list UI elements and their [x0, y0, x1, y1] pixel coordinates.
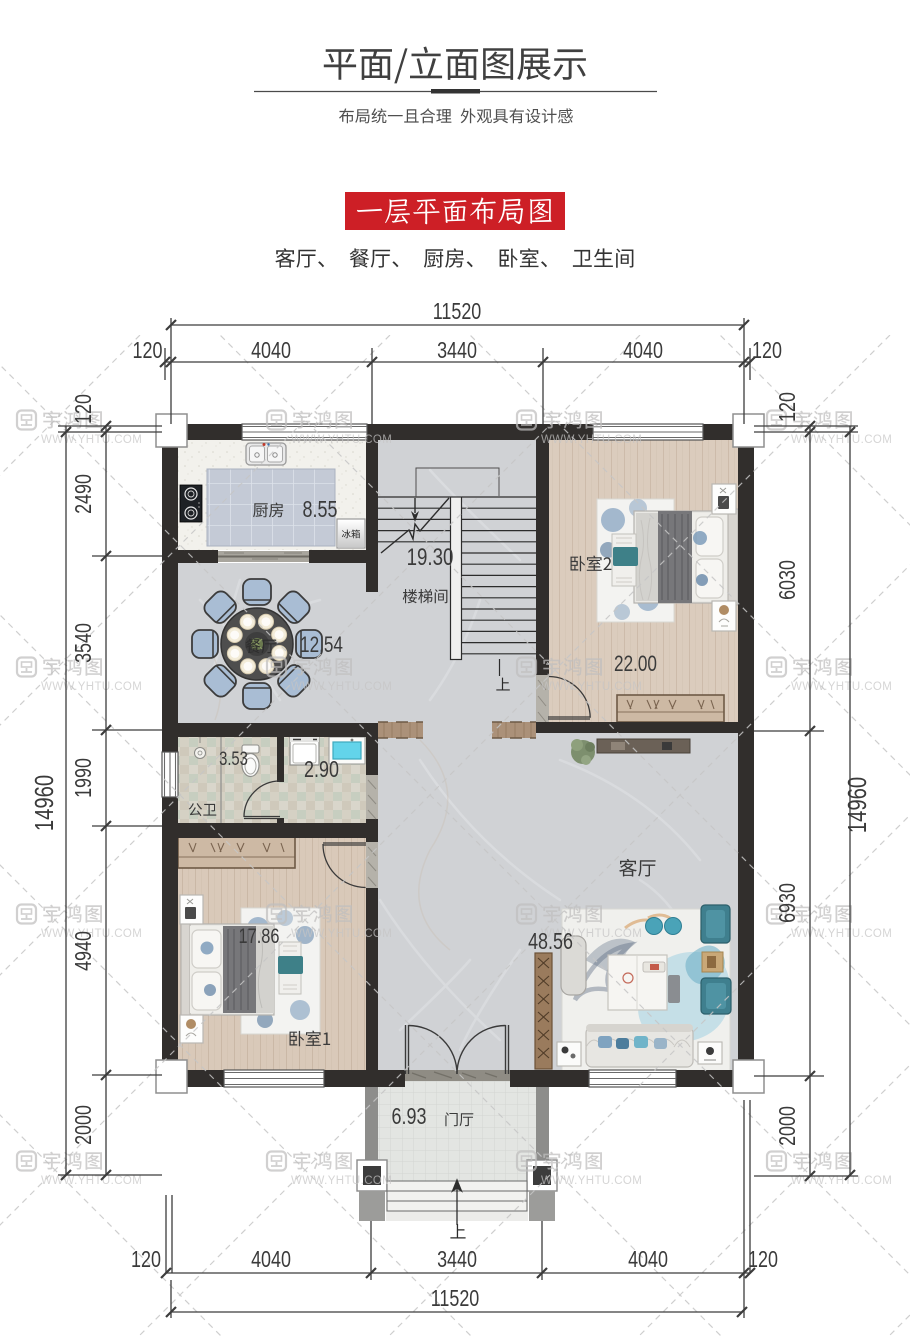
svg-text:120: 120: [775, 392, 801, 422]
svg-text:120: 120: [752, 338, 782, 364]
svg-text:120: 120: [133, 338, 163, 364]
svg-text:120: 120: [748, 1247, 778, 1273]
svg-text:6030: 6030: [775, 560, 801, 600]
svg-text:WWW.YHTU.COM: WWW.YHTU.COM: [41, 434, 142, 446]
svg-text:4040: 4040: [628, 1247, 668, 1273]
svg-text:WWW.YHTU.COM: WWW.YHTU.COM: [291, 434, 392, 446]
svg-text:WWW.YHTU.COM: WWW.YHTU.COM: [291, 1175, 392, 1187]
svg-text:6930: 6930: [775, 883, 801, 923]
svg-text:WWW.YHTU.COM: WWW.YHTU.COM: [791, 681, 892, 693]
svg-text:WWW.YHTU.COM: WWW.YHTU.COM: [291, 681, 392, 693]
svg-text:12.54: 12.54: [300, 633, 343, 658]
svg-text:22.00: 22.00: [614, 652, 657, 677]
svg-text:WWW.YHTU.COM: WWW.YHTU.COM: [541, 434, 642, 446]
svg-text:WWW.YHTU.COM: WWW.YHTU.COM: [541, 681, 642, 693]
svg-text:14960: 14960: [30, 775, 59, 831]
svg-text:11520: 11520: [431, 1286, 480, 1312]
svg-text:3440: 3440: [437, 338, 477, 364]
svg-text:1990: 1990: [71, 758, 97, 798]
svg-text:3440: 3440: [437, 1247, 477, 1273]
svg-text:4040: 4040: [623, 338, 663, 364]
svg-text:WWW.YHTU.COM: WWW.YHTU.COM: [791, 928, 892, 940]
svg-text:3540: 3540: [71, 623, 97, 663]
svg-text:6.93: 6.93: [392, 1104, 427, 1130]
svg-text:WWW.YHTU.COM: WWW.YHTU.COM: [291, 928, 392, 940]
svg-text:8.55: 8.55: [303, 497, 338, 523]
svg-text:WWW.YHTU.COM: WWW.YHTU.COM: [541, 1175, 642, 1187]
svg-text:3.53: 3.53: [219, 748, 248, 769]
svg-text:17.86: 17.86: [239, 924, 280, 947]
svg-text:4040: 4040: [251, 338, 291, 364]
svg-text:120: 120: [71, 394, 97, 424]
svg-text:19.30: 19.30: [407, 544, 454, 571]
svg-text:4940: 4940: [71, 931, 97, 971]
svg-text:WWW.YHTU.COM: WWW.YHTU.COM: [41, 681, 142, 693]
svg-text:120: 120: [131, 1247, 161, 1273]
svg-text:2000: 2000: [775, 1106, 801, 1146]
svg-text:14960: 14960: [843, 777, 872, 833]
svg-text:2.90: 2.90: [304, 757, 339, 783]
svg-text:11520: 11520: [433, 299, 482, 325]
svg-text:2490: 2490: [71, 474, 97, 514]
svg-text:WWW.YHTU.COM: WWW.YHTU.COM: [41, 1175, 142, 1187]
svg-text:48.56: 48.56: [528, 929, 573, 955]
svg-text:2000: 2000: [71, 1105, 97, 1145]
svg-text:4040: 4040: [251, 1247, 291, 1273]
